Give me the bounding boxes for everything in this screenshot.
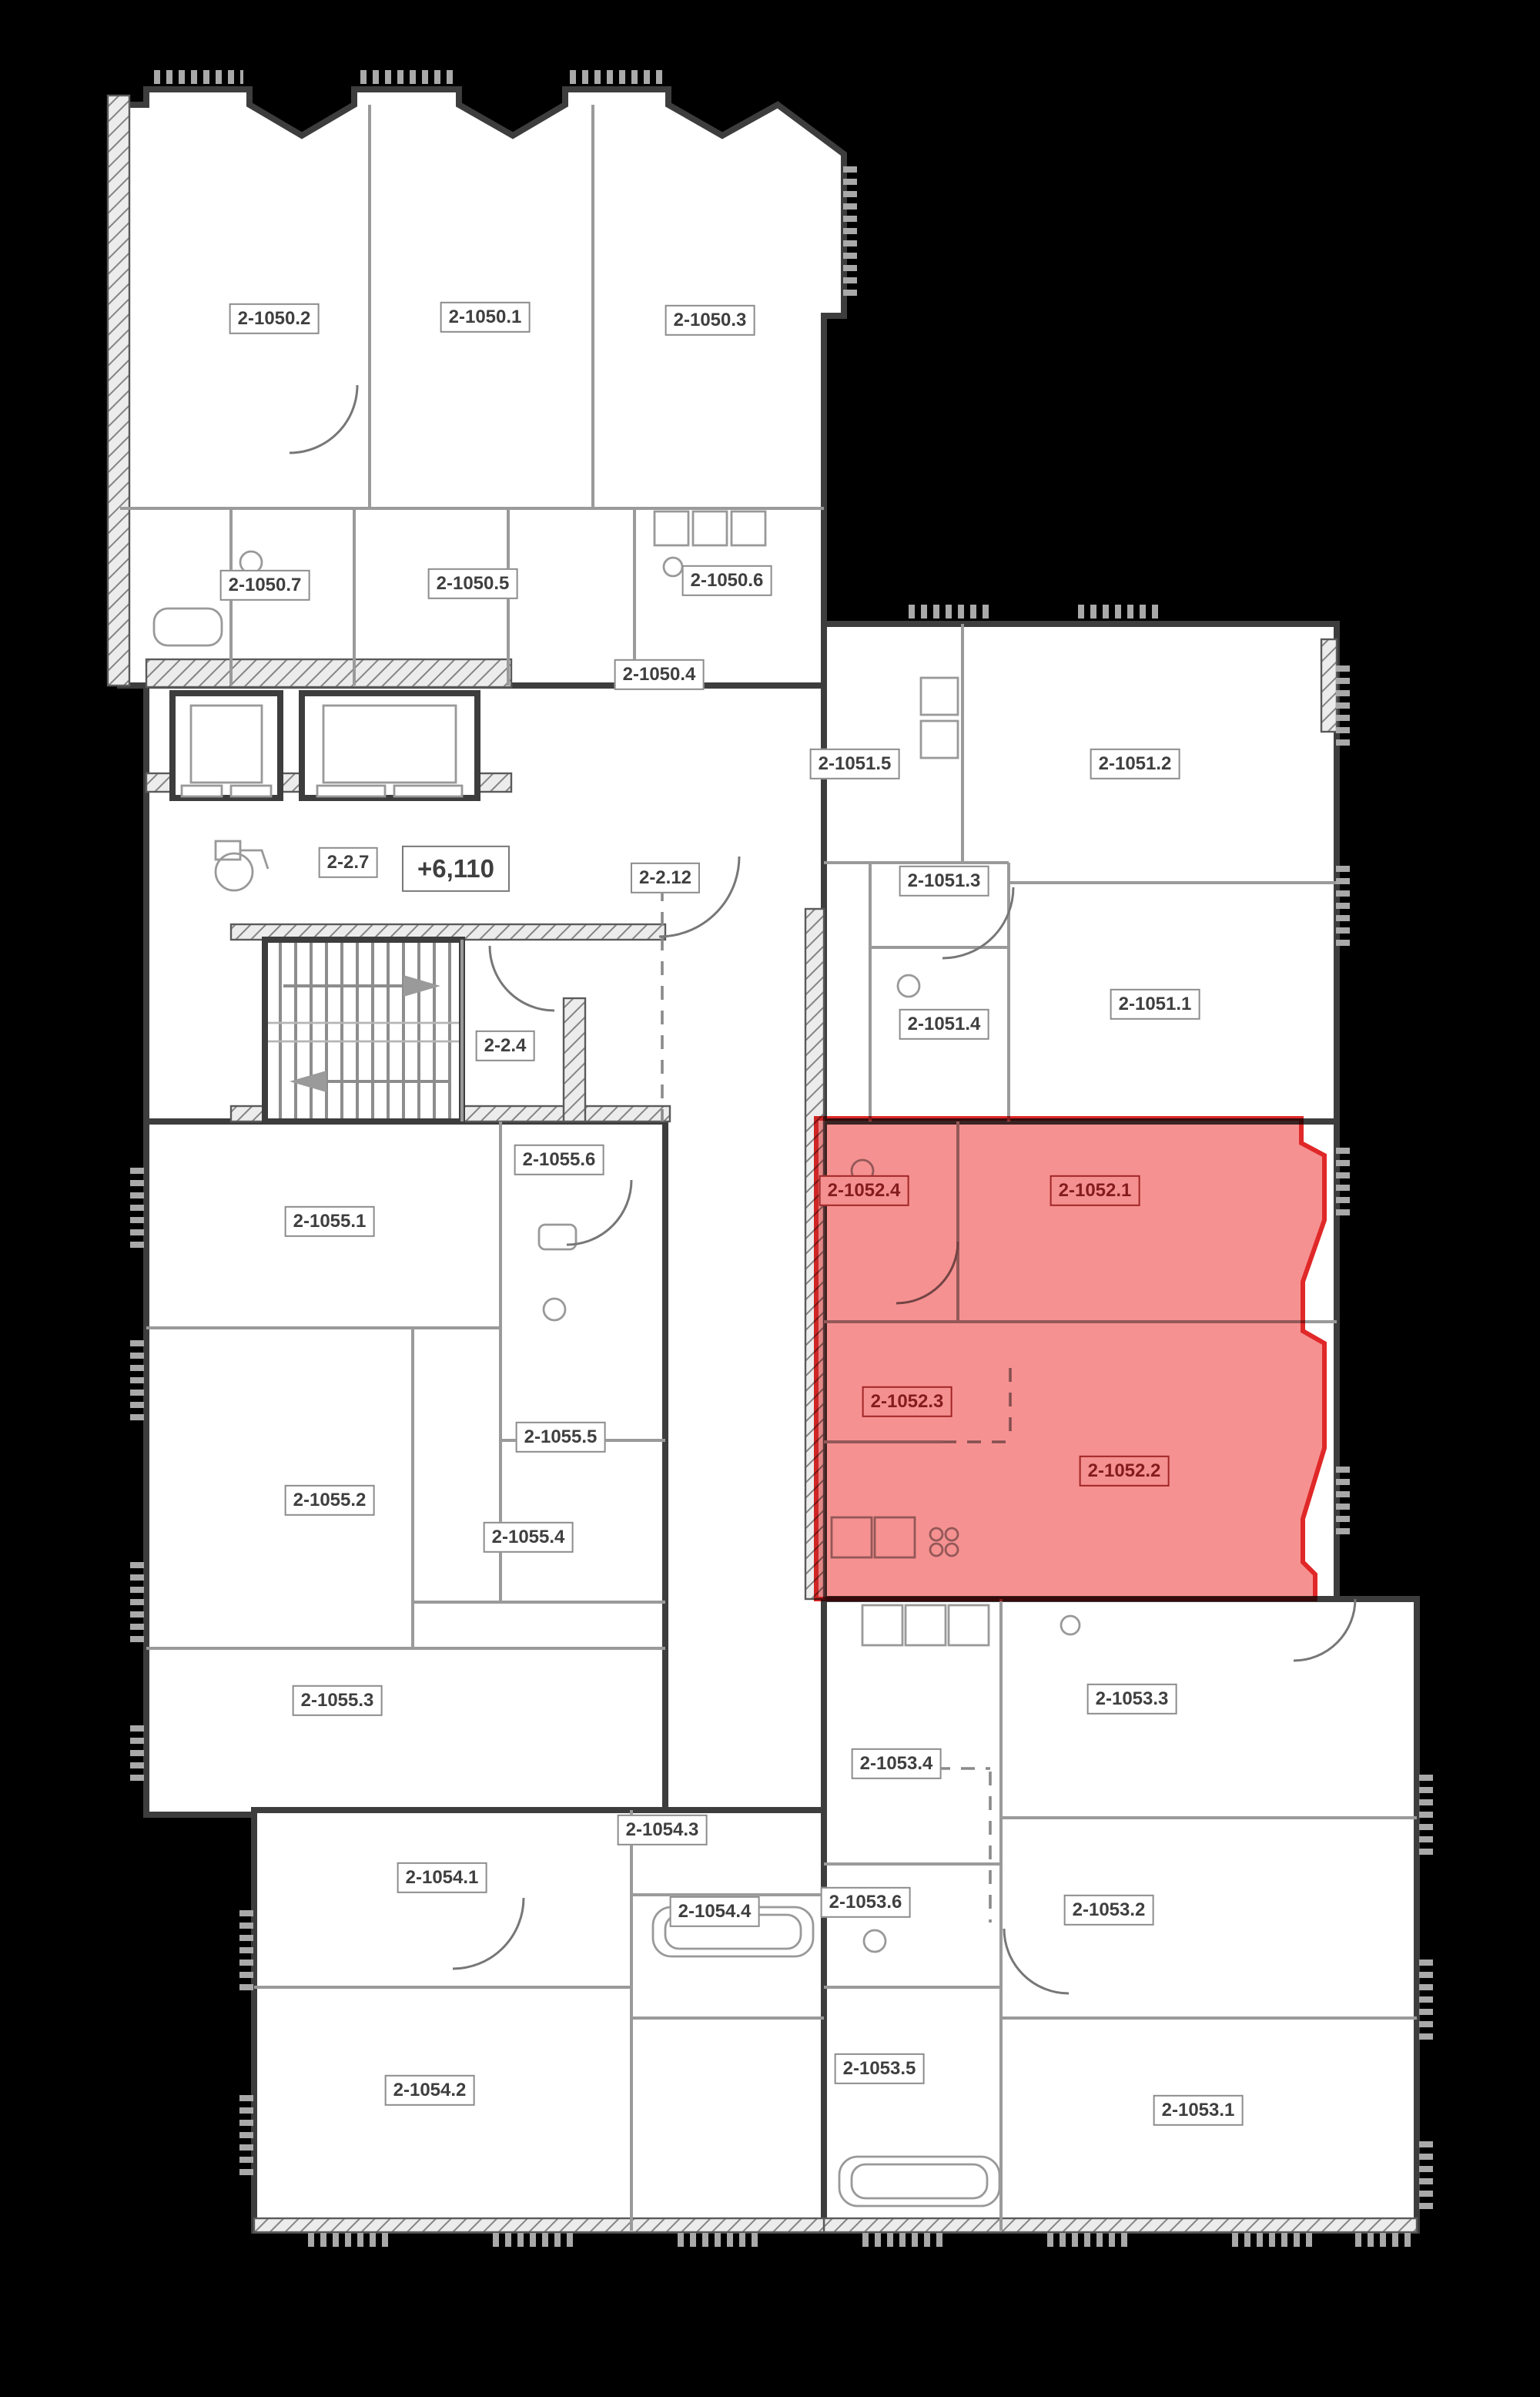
room-label-2-1050-1: 2-1050.1 [440, 302, 531, 333]
room-label-2-1055-4: 2-1055.4 [484, 1522, 574, 1553]
room-label-2-1052-4[interactable]: 2-1052.4 [819, 1175, 909, 1206]
room-label-2-1053-4: 2-1053.4 [852, 1748, 942, 1779]
room-label-2-2-12: 2-2.12 [631, 863, 700, 893]
room-label-2-1052-3[interactable]: 2-1052.3 [862, 1386, 952, 1417]
room-label-2-2-7: 2-2.7 [319, 847, 378, 878]
room-label-2-2-4: 2-2.4 [476, 1031, 535, 1061]
room-label-2-1050-2: 2-1050.2 [229, 303, 320, 334]
room-label-2-1053-2: 2-1053.2 [1064, 1895, 1154, 1926]
room-label-2-1055-6: 2-1055.6 [514, 1145, 604, 1175]
room-label-2-1051-5: 2-1051.5 [810, 749, 900, 779]
block-2-1054 [254, 1810, 824, 2231]
room-label-2-1052-1[interactable]: 2-1052.1 [1050, 1175, 1140, 1206]
room-label-2-1051-3: 2-1051.3 [899, 866, 989, 897]
room-label-2-1054-2: 2-1054.2 [385, 2075, 475, 2106]
room-label-2-1050-6: 2-1050.6 [682, 565, 772, 596]
room-label-2-1055-2: 2-1055.2 [285, 1485, 375, 1516]
floor-plan-svg [0, 0, 1540, 2397]
room-label-2-1054-3: 2-1054.3 [618, 1815, 708, 1846]
elevator-shafts [172, 693, 477, 798]
room-label-2-1054-4: 2-1054.4 [670, 1896, 760, 1927]
room-label-2-1052-2[interactable]: 2-1052.2 [1080, 1456, 1170, 1487]
room-label-2-1050-4: 2-1050.4 [614, 659, 705, 690]
room-label-2-1053-3: 2-1053.3 [1087, 1684, 1177, 1715]
block-2-1055 [146, 1121, 665, 1815]
stairs [265, 940, 462, 1121]
room-label-2-1051-2: 2-1051.2 [1090, 749, 1180, 779]
room-label-2-1053-6: 2-1053.6 [821, 1887, 911, 1918]
room-label-2-1053-5: 2-1053.5 [835, 2053, 925, 2084]
room-label-2-1051-4: 2-1051.4 [899, 1009, 989, 1040]
room-label-2-1051-1: 2-1051.1 [1110, 989, 1200, 1020]
room-label-2-1050-7: 2-1050.7 [220, 570, 310, 601]
room-label-2-1055-5: 2-1055.5 [516, 1422, 606, 1453]
room-label-2-1055-3: 2-1055.3 [293, 1685, 383, 1716]
room-label-2-1050-5: 2-1050.5 [428, 568, 518, 599]
level-mark-label: +6,110 [402, 846, 510, 892]
room-label-2-1054-1: 2-1054.1 [397, 1862, 487, 1893]
room-label-2-1055-1: 2-1055.1 [285, 1206, 375, 1237]
floor-plan-stage: 2-1050.2 2-1050.1 2-1050.3 2-1050.7 2-10… [0, 0, 1540, 2397]
room-label-2-1050-3: 2-1050.3 [665, 305, 755, 336]
room-label-2-1053-1: 2-1053.1 [1153, 2095, 1244, 2126]
